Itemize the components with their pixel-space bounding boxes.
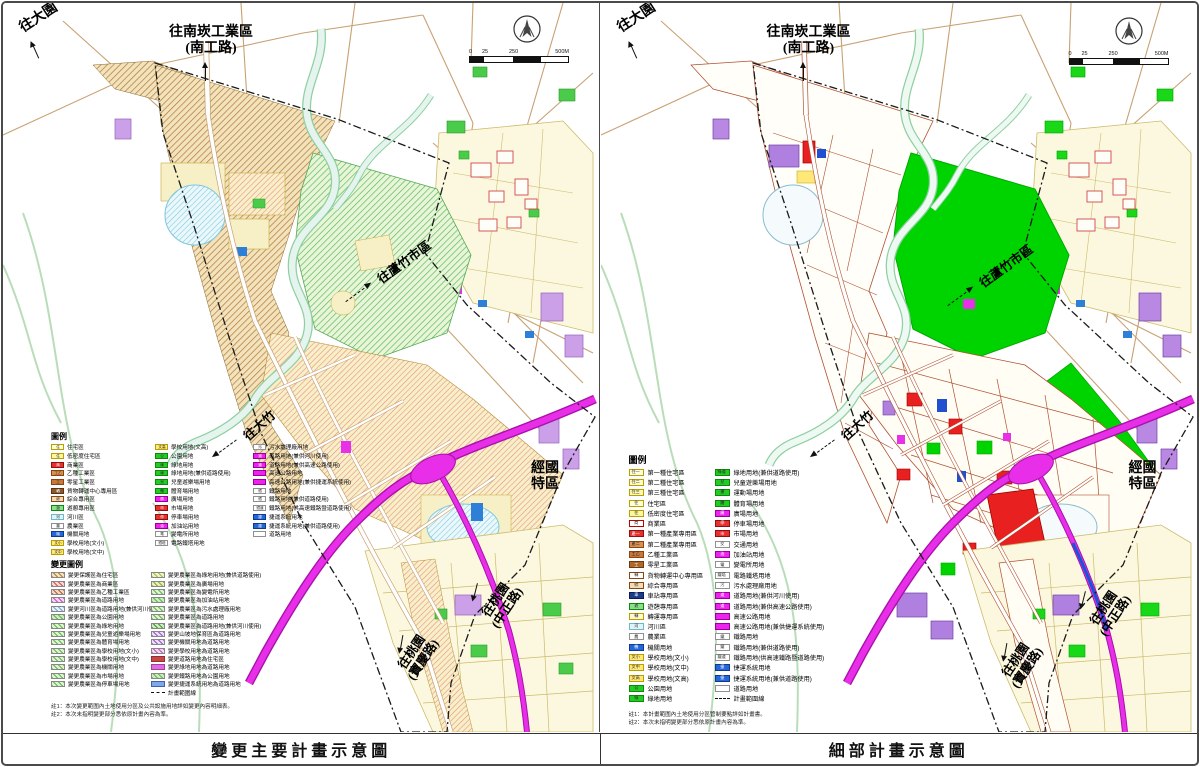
legend-swatch: 鐵 — [253, 496, 266, 502]
legend-item: 工零星工業區 — [629, 560, 715, 570]
legend-label: 市場用地 — [171, 504, 193, 512]
legend-item: 道道路用地(兼供河川使用) — [715, 591, 845, 601]
legend-label: 變更農業區為變電所用地 — [168, 588, 230, 596]
legend-label: 變更農業區為加油站用地 — [168, 596, 230, 604]
legend-item: 住二第二種住宅區 — [629, 477, 715, 487]
legend-label: 轉運專用區 — [648, 612, 679, 621]
legend-label: 變電所用地 — [171, 530, 199, 538]
legend-item: 道道路用地(兼供河川使用) — [253, 452, 395, 461]
legend-label: 第一種住宅區 — [648, 468, 685, 477]
legend-swatch: 商 — [629, 520, 644, 527]
legend-swatch: 鐵道 — [715, 654, 730, 661]
legend-swatch: 停 — [715, 520, 730, 527]
legend-label: 變更農業區為道路用地 — [168, 613, 224, 621]
legend-item: 變更農業區為綠地用地(兼供道路使用) — [151, 571, 301, 579]
legend-swatch: 綠 — [155, 470, 168, 476]
legend-label: 體育場用地 — [734, 499, 765, 508]
legend-item: 鐵道鐵路用地(供高速鐵路暨道路使用) — [715, 652, 845, 662]
legend-label: 綠地用地 — [648, 694, 673, 703]
legend-item: 道道路用地(兼供高速公路使用) — [253, 460, 395, 469]
caption-detail-plan: 細部計畫示意圖 — [601, 734, 1198, 764]
legend-item: 商商業區 — [629, 518, 715, 528]
change-legend-title: 變更圖例 — [51, 559, 83, 570]
legend-item: 高速公路用地(兼供捷運系統使用) — [253, 478, 395, 487]
legend-item: 農農業區 — [629, 632, 715, 642]
legend-swatch: 停 — [155, 514, 168, 520]
legend-item: 變更捷運系統用地為道路用地 — [151, 680, 301, 688]
legend-label: 低密度住宅區 — [648, 509, 685, 518]
legend-item: 住低密度住宅區 — [51, 452, 155, 461]
legend-swatch: 商 — [51, 462, 64, 468]
legend-swatch — [51, 581, 65, 587]
legend-swatch: 鐵塔 — [155, 540, 168, 546]
legend-swatch — [51, 681, 65, 687]
legend-swatch: 兒 — [155, 479, 168, 485]
legend-label: 兒童遊樂場用地 — [734, 478, 777, 487]
legend-item: 市市場用地 — [155, 504, 253, 513]
legend-item: 道路用地 — [715, 683, 845, 693]
legend-label: 變更農業區為體育場用地 — [68, 638, 130, 646]
legend-change: 變更保護區為住宅區變更農業區為商業區變更農業區為乙種工業區變更農業區為道路用地變… — [51, 571, 301, 697]
legend-label: 停車場用地 — [734, 519, 765, 528]
legend-item: 捷捷運系統用地 — [253, 513, 395, 522]
legend-swatch: 河 — [51, 514, 64, 520]
legend-swatch: 電 — [155, 531, 168, 537]
legend-detail: 住一第一種住宅區住二第二種住宅區住三第三種住宅區住住宅區住低密度住宅區商商業區產… — [629, 467, 845, 704]
legend-label: 鐵路用地(供高速鐵路暨道路使用) — [269, 504, 351, 512]
legend-swatch: 鐵道 — [253, 505, 266, 511]
legend-label: 商業區 — [648, 519, 667, 528]
legend-item: 鐵塔電路鐵塔用地 — [715, 570, 845, 580]
legend-label: 遊憩專用區 — [67, 504, 95, 512]
label-jingguo: 經國 特區 — [1129, 461, 1157, 493]
legend-swatch: 工 — [51, 479, 64, 485]
legend-swatch — [253, 470, 266, 476]
legend-item: 工乙乙種工業區 — [51, 469, 155, 478]
legend-label: 商業區 — [67, 461, 84, 469]
legend-swatch: 運 — [715, 489, 730, 496]
legend-item: 兒兒童遊樂場用地 — [715, 477, 845, 487]
legend-label: 第一種產業專用區 — [648, 529, 698, 538]
legend-swatch — [151, 639, 165, 645]
legend-swatch: 體 — [155, 488, 168, 494]
map-notes: 註1：本計畫範圍內土地使用分區管制要點詳如計畫書。 註2：本次未指明變更部分悉依… — [629, 711, 766, 727]
legend-label: 道路用地 — [734, 684, 759, 693]
plan-boundary-swatch — [715, 695, 730, 702]
legend-item: 變更農業區為污水處理廠用地 — [151, 605, 301, 613]
legend-swatch: 住 — [51, 453, 64, 459]
legend-item: 變更農業區為道路用地 — [51, 596, 151, 604]
legend-item: 變更農業區為道路用地 — [151, 613, 301, 621]
caption-master-plan: 變更主要計畫示意圖 — [3, 734, 601, 764]
legend-item: 文小學校用地(文小) — [629, 652, 715, 662]
legend-label: 污水處理廠用地 — [734, 581, 777, 590]
legend-swatch — [151, 581, 165, 587]
legend-item: 文高學校用地(文高) — [629, 673, 715, 683]
legend-label: 廣場用地 — [734, 509, 759, 518]
legend-label: 變更農業區為道路用地 — [68, 596, 124, 604]
legend-label: 變更機關用地為道路用地 — [168, 638, 230, 646]
legend-swatch — [151, 589, 165, 595]
legend-swatch: 鐵塔 — [715, 572, 730, 579]
legend-label: 加油站用地 — [171, 522, 199, 530]
legend-item: 捷捷運系統用地(兼供道路使用) — [253, 521, 395, 530]
legend-item: 變更農業區為變電所用地 — [151, 588, 301, 596]
legend-swatch: 遊 — [51, 505, 64, 511]
legend-swatch: 捷 — [253, 514, 266, 520]
legend-label: 變更農業區為公園用地 — [68, 613, 124, 621]
legend-swatch: 鐵 — [715, 633, 730, 640]
arrow-to-nankan-icon — [803, 65, 804, 81]
legend-swatch — [51, 648, 65, 654]
legend-swatch: 農 — [51, 523, 64, 529]
legend-swatch: 住 — [51, 444, 64, 450]
legend-swatch: 鐵 — [715, 644, 730, 651]
legend-label: 捷運系統用地(兼供道路使用) — [734, 674, 812, 683]
legend-swatch — [51, 606, 65, 612]
legend-item: 文中學校用地(文中) — [51, 547, 155, 556]
legend-item: 變更綠地用地為道路用地 — [151, 663, 301, 671]
legend-item: 市市場用地 — [715, 529, 845, 539]
legend-swatch — [151, 572, 165, 578]
legend-label: 變更農業區為學校用地(文中) — [68, 655, 139, 663]
legend-item: 產二第二種產業專用區 — [629, 539, 715, 549]
legend-label: 變更鐵路用地為公園用地 — [168, 672, 230, 680]
legend-item: 鐵鐵路用地(兼供道路使用) — [253, 495, 395, 504]
legend-item: 變更農業區為學校用地(文小) — [51, 647, 151, 655]
legend-swatch: 污 — [253, 444, 266, 450]
legend-swatch: 工乙 — [51, 470, 64, 476]
legend-item: 高速公路用地 — [715, 611, 845, 621]
legend-item: 變更農業區為廣場用地 — [151, 579, 301, 587]
legend-swatch: 道 — [253, 462, 266, 468]
legend-swatch — [151, 648, 165, 654]
legend-label: 鐵路用地(供高速鐵路暨道路使用) — [734, 653, 825, 662]
legend-label: 高速公路用地(兼供捷運系統使用) — [269, 478, 351, 486]
legend-item: 兒兒童遊樂場用地 — [155, 478, 253, 487]
legend-item: 轉貨物轉運中心專用區 — [629, 570, 715, 580]
legend-label: 第三種住宅區 — [648, 488, 685, 497]
label-to-nankan: 往南崁工業區 (南工路) — [151, 25, 271, 57]
legend-label: 停車場用地 — [171, 513, 199, 521]
legend-swatch: 交 — [715, 541, 730, 548]
legend-title: 圖例 — [51, 431, 67, 442]
north-arrow-icon — [1113, 15, 1145, 47]
legend-item: 計畫範圍線 — [151, 688, 301, 696]
legend-label: 交通用地 — [734, 540, 759, 549]
legend-swatch: 公 — [155, 453, 168, 459]
legend-item: 高速公路用地(兼供捷運系統使用) — [715, 621, 845, 631]
legend-swatch: 文中 — [51, 549, 64, 555]
legend-label: 乙種工業區 — [648, 550, 679, 559]
legend-swatch: 綜 — [51, 496, 64, 502]
legend-swatch — [715, 685, 730, 692]
legend-label: 體育場用地 — [171, 487, 199, 495]
legend-item: 綠綠地用地(兼供道路使用) — [155, 469, 253, 478]
legend-item: 住低密度住宅區 — [629, 508, 715, 518]
legend-swatch: 文中 — [629, 664, 644, 671]
legend-item: 油加油站用地 — [155, 521, 253, 530]
legend-label: 乙種工業區 — [67, 469, 95, 477]
legend-item: 鐵鐵路用地 — [715, 632, 845, 642]
legend-item: 變更道路用地為住宅區 — [151, 655, 301, 663]
legend-label: 道路用地(兼供高速公路使用) — [734, 602, 812, 611]
legend-swatch — [253, 479, 266, 485]
legend-swatch: 工乙 — [629, 551, 644, 558]
legend-item: 捷捷運系統用地 — [715, 663, 845, 673]
legend-label: 電路鐵塔用地 — [171, 539, 205, 547]
scale-bar: 0 25 250 500M — [469, 49, 569, 63]
legend-label: 計畫範圍線 — [734, 694, 765, 703]
panel-master-plan: 往大園 往南崁工業區 (南工路) 往蘆竹市區 往大竹 經國 特區 往桃園 (中正… — [3, 3, 600, 732]
caption-row: 變更主要計畫示意圖 細部計畫示意圖 — [3, 733, 1197, 764]
legend-label: 公園用地 — [648, 684, 673, 693]
legend-label: 學校用地(文中) — [67, 548, 104, 556]
legend-item: 遊遊憩專用區 — [51, 504, 155, 513]
legend-item: 文高學校用地(文高) — [155, 443, 253, 452]
legend-item: 交交通用地 — [715, 539, 845, 549]
legend-swatch: 道 — [715, 603, 730, 610]
legend-item: 文小學校用地(文小) — [51, 539, 155, 548]
legend-label: 河川區 — [648, 622, 667, 631]
legend-label: 學校用地(文小) — [648, 653, 689, 662]
legend-label: 電路鐵塔用地 — [734, 571, 771, 580]
legend-item: 住三第三種住宅區 — [629, 488, 715, 498]
legend-swatch: 轉 — [629, 572, 644, 579]
legend-label: 第二種住宅區 — [648, 478, 685, 487]
legend-label: 變更農業區為停車場用地 — [68, 680, 130, 688]
legend-item: 鐵塔電路鐵塔用地 — [155, 539, 253, 548]
legend-label: 變更河川區為道路用地(兼供河川使用) — [68, 605, 161, 613]
legend-label: 農業區 — [648, 632, 667, 641]
legend-item: 文中學校用地(文中) — [629, 663, 715, 673]
legend-item: 住住宅區 — [51, 443, 155, 452]
legend-item: 變更農業區為乙種工業區 — [51, 588, 151, 596]
legend-item: 機機關用地 — [629, 642, 715, 652]
legend-swatch: 電 — [715, 561, 730, 568]
legend-swatch — [51, 597, 65, 603]
legend-item: 變更農業區為機關用地 — [51, 663, 151, 671]
legend-label: 鐵路用地(兼供道路使用) — [734, 643, 800, 652]
legend-label: 變更保護區為住宅區 — [68, 571, 118, 579]
legend-label: 計畫範圍線 — [168, 689, 196, 697]
legend-label: 學校用地(文中) — [648, 663, 689, 672]
legend-item: 鐵鐵路用地(兼供道路使用) — [715, 642, 845, 652]
legend-item: 道路用地 — [253, 530, 395, 539]
legend-swatch — [51, 656, 65, 662]
legend-swatch: 住 — [629, 500, 644, 507]
plan-boundary-swatch — [151, 690, 165, 696]
legend-swatch: 河 — [629, 623, 644, 630]
legend-item: 污污水處理廠用地 — [715, 580, 845, 590]
legend-swatch: 住二 — [629, 479, 644, 486]
legend-swatch: 公 — [629, 685, 644, 692]
north-arrow-icon — [511, 13, 543, 45]
legend-item: 住住宅區 — [629, 498, 715, 508]
legend-label: 變更山坡地保育區為道路用地 — [168, 630, 241, 638]
legend-label: 高速公路用地 — [269, 469, 303, 477]
legend-label: 河川區 — [67, 513, 84, 521]
legend-item: 公公園用地 — [155, 452, 253, 461]
legend-item: 油加油站用地 — [715, 549, 845, 559]
legend-swatch: 油 — [715, 551, 730, 558]
legend-item: 電變電所用地 — [155, 530, 253, 539]
legend-label: 變更農業區為兒童遊樂場用地 — [68, 630, 141, 638]
legend-label: 綜合專用區 — [648, 581, 679, 590]
legend-swatch: 綠 — [155, 462, 168, 468]
legend-item: 變更農業區為道路用地(兼供河川使用) — [151, 621, 301, 629]
legend-label: 農業區 — [67, 522, 84, 530]
legend-item: 遊遊憩專用區 — [629, 601, 715, 611]
legend-swatch: 住三 — [629, 489, 644, 496]
legend-item: 道道路用地(兼供高速公路使用) — [715, 601, 845, 611]
legend-label: 捷運系統用地 — [734, 663, 771, 672]
legend-item: 停停車場用地 — [155, 513, 253, 522]
legend-label: 鐵路用地(兼供道路使用) — [269, 495, 329, 503]
legend-swatch: 產一 — [629, 530, 644, 537]
legend-swatch — [51, 673, 65, 679]
panel-detail-plan: 往大園 往南崁工業區 (南工路) 往蘆竹市區 往大竹 經國 特區 往桃園 (中正… — [601, 3, 1197, 732]
legend-item: 變更山坡地保育區為道路用地 — [151, 630, 301, 638]
legend-label: 變更農業區為乙種工業區 — [68, 588, 130, 596]
legend-swatch: 遊 — [629, 603, 644, 610]
legend-swatch: 道 — [253, 453, 266, 459]
legend-swatch: 兒 — [715, 479, 730, 486]
legend-label: 廣場用地 — [171, 495, 193, 503]
legend-label: 兒童遊樂場用地 — [171, 478, 210, 486]
legend-item: 高速公路用地 — [253, 469, 395, 478]
legend-label: 捷運系統用地 — [269, 513, 303, 521]
legend-swatch: 機 — [51, 531, 64, 537]
legend-item: 運運動場用地 — [715, 488, 845, 498]
legend-swatch — [151, 606, 165, 612]
legend-item: 綠綠地用地 — [629, 694, 715, 704]
legend-swatch — [151, 631, 165, 637]
legend-swatch: 轉 — [629, 613, 644, 620]
legend-label: 機關用地 — [67, 530, 89, 538]
legend-swatch: 綠 — [629, 695, 644, 702]
legend-label: 變更農業區為學校用地(文小) — [68, 647, 139, 655]
legend-label: 變更農業區為道路用地(兼供河川使用) — [168, 622, 261, 630]
legend-item: 變更農業區為學校用地(文中) — [51, 655, 151, 663]
legend-item: 公公園用地 — [629, 683, 715, 693]
legend-swatch: 轉 — [51, 488, 64, 494]
legend-swatch: 住一 — [629, 469, 644, 476]
legend-swatch — [715, 623, 730, 630]
legend-label: 道路用地 — [269, 530, 291, 538]
legend-item: 綠綠地用地 — [155, 460, 253, 469]
legend-label: 變更農業區為廣場用地 — [168, 580, 224, 588]
legend-swatch: 產二 — [629, 541, 644, 548]
legend-swatch: 文小 — [629, 654, 644, 661]
legend-label: 道路用地(兼供河川使用) — [734, 591, 800, 600]
legend-item: 工乙乙種工業區 — [629, 549, 715, 559]
legend-label: 變更農業區為綠地用地 — [68, 622, 124, 630]
legend-item: 電變電所用地 — [715, 560, 845, 570]
legend-label: 貨物轉運中心專用區 — [67, 487, 117, 495]
map-notes: 註1：本次變更範圍內土地使用分區及公共設施用地詳如變更內容明細表。 註2：本次未… — [51, 703, 233, 719]
legend-swatch — [51, 623, 65, 629]
legend-label: 車站專用區 — [648, 591, 679, 600]
legend-swatch: 市 — [155, 505, 168, 511]
legend-label: 變更學校用地為道路用地 — [168, 647, 230, 655]
legend-swatch: 道 — [715, 592, 730, 599]
legend-label: 第二種產業專用區 — [648, 540, 698, 549]
legend-swatch: 污 — [715, 582, 730, 589]
legend-label: 機關用地 — [648, 643, 673, 652]
legend-item: 河河川區 — [51, 513, 155, 522]
legend-swatch — [253, 531, 266, 537]
legend-item: 變更鐵路用地為公園用地 — [151, 672, 301, 680]
legend-swatch — [151, 623, 165, 629]
legend-label: 貨物轉運中心專用區 — [648, 571, 704, 580]
legend-label: 學校用地(文高) — [171, 443, 208, 451]
legend-swatch: 綠道 — [715, 469, 730, 476]
legend-swatch — [715, 613, 730, 620]
legend-swatch — [51, 639, 65, 645]
legend-item: 變更農業區為商業區 — [51, 579, 151, 587]
legend-item: 計畫範圍線 — [715, 694, 845, 704]
legend-swatch — [151, 614, 165, 620]
legend-swatch — [151, 597, 165, 603]
legend-item: 廣廣場用地 — [155, 495, 253, 504]
legend-item: 變更農業區為公園用地 — [51, 613, 151, 621]
legend-label: 綠地用地(兼供道路使用) — [171, 469, 231, 477]
legend-swatch: 捷 — [253, 523, 266, 529]
legend-label: 變更農業區為機關用地 — [68, 663, 124, 671]
scale-bar: 0 25 250 500M — [1069, 51, 1169, 65]
legend-label: 綜合專用區 — [67, 495, 95, 503]
legend-item: 產一第一種產業專用區 — [629, 529, 715, 539]
map-area: 往大園 往南崁工業區 (南工路) 往蘆竹市區 往大竹 經國 特區 往桃園 (中正… — [3, 3, 1197, 732]
legend-master: 住住宅區住低密度住宅區商商業區工乙乙種工業區工零星工業區轉貨物轉運中心專用區綜綜… — [51, 443, 395, 556]
legend-label: 捷運系統用地(兼供道路使用) — [269, 522, 340, 530]
legend-item: 轉貨物轉運中心專用區 — [51, 486, 155, 495]
legend-swatch — [51, 572, 65, 578]
legend-label: 運動場用地 — [734, 488, 765, 497]
legend-label: 變更農業區為商業區 — [68, 580, 118, 588]
legend-swatch — [51, 631, 65, 637]
legend-item: 住一第一種住宅區 — [629, 467, 715, 477]
legend-item: 河河川區 — [629, 621, 715, 631]
legend-label: 道路用地(兼供高速公路使用) — [269, 461, 340, 469]
legend-item: 鐵道鐵路用地(供高速鐵路暨道路使用) — [253, 504, 395, 513]
legend-swatch: 農 — [629, 633, 644, 640]
legend-label: 住宅區 — [648, 499, 667, 508]
legend-label: 遊憩專用區 — [648, 602, 679, 611]
legend-label: 變更捷運系統用地為道路用地 — [168, 680, 241, 688]
legend-label: 學校用地(文小) — [67, 539, 104, 547]
legend-item: 工零星工業區 — [51, 478, 155, 487]
label-jingguo: 經國 特區 — [531, 461, 559, 493]
legend-label: 低密度住宅區 — [67, 452, 101, 460]
legend-item: 變更農業區為停車場用地 — [51, 680, 151, 688]
legend-label: 污水處理廠用地 — [269, 443, 308, 451]
legend-item: 車車站專用區 — [629, 591, 715, 601]
legend-swatch: 體 — [715, 500, 730, 507]
legend-label: 道路用地(兼供河川使用) — [269, 452, 329, 460]
legend-swatch: 機 — [629, 644, 644, 651]
arrow-to-nankan-icon — [205, 65, 206, 81]
legend-item: 機機關用地 — [51, 530, 155, 539]
legend-label: 變更農業區為綠地用地(兼供道路使用) — [168, 571, 261, 579]
legend-label: 變更農業區為污水處理廠用地 — [168, 605, 241, 613]
legend-item: 綜綜合專用區 — [51, 495, 155, 504]
legend-swatch — [51, 589, 65, 595]
legend-label: 公園用地 — [171, 452, 193, 460]
legend-item: 停停車場用地 — [715, 518, 845, 528]
legend-swatch: 油 — [155, 523, 168, 529]
